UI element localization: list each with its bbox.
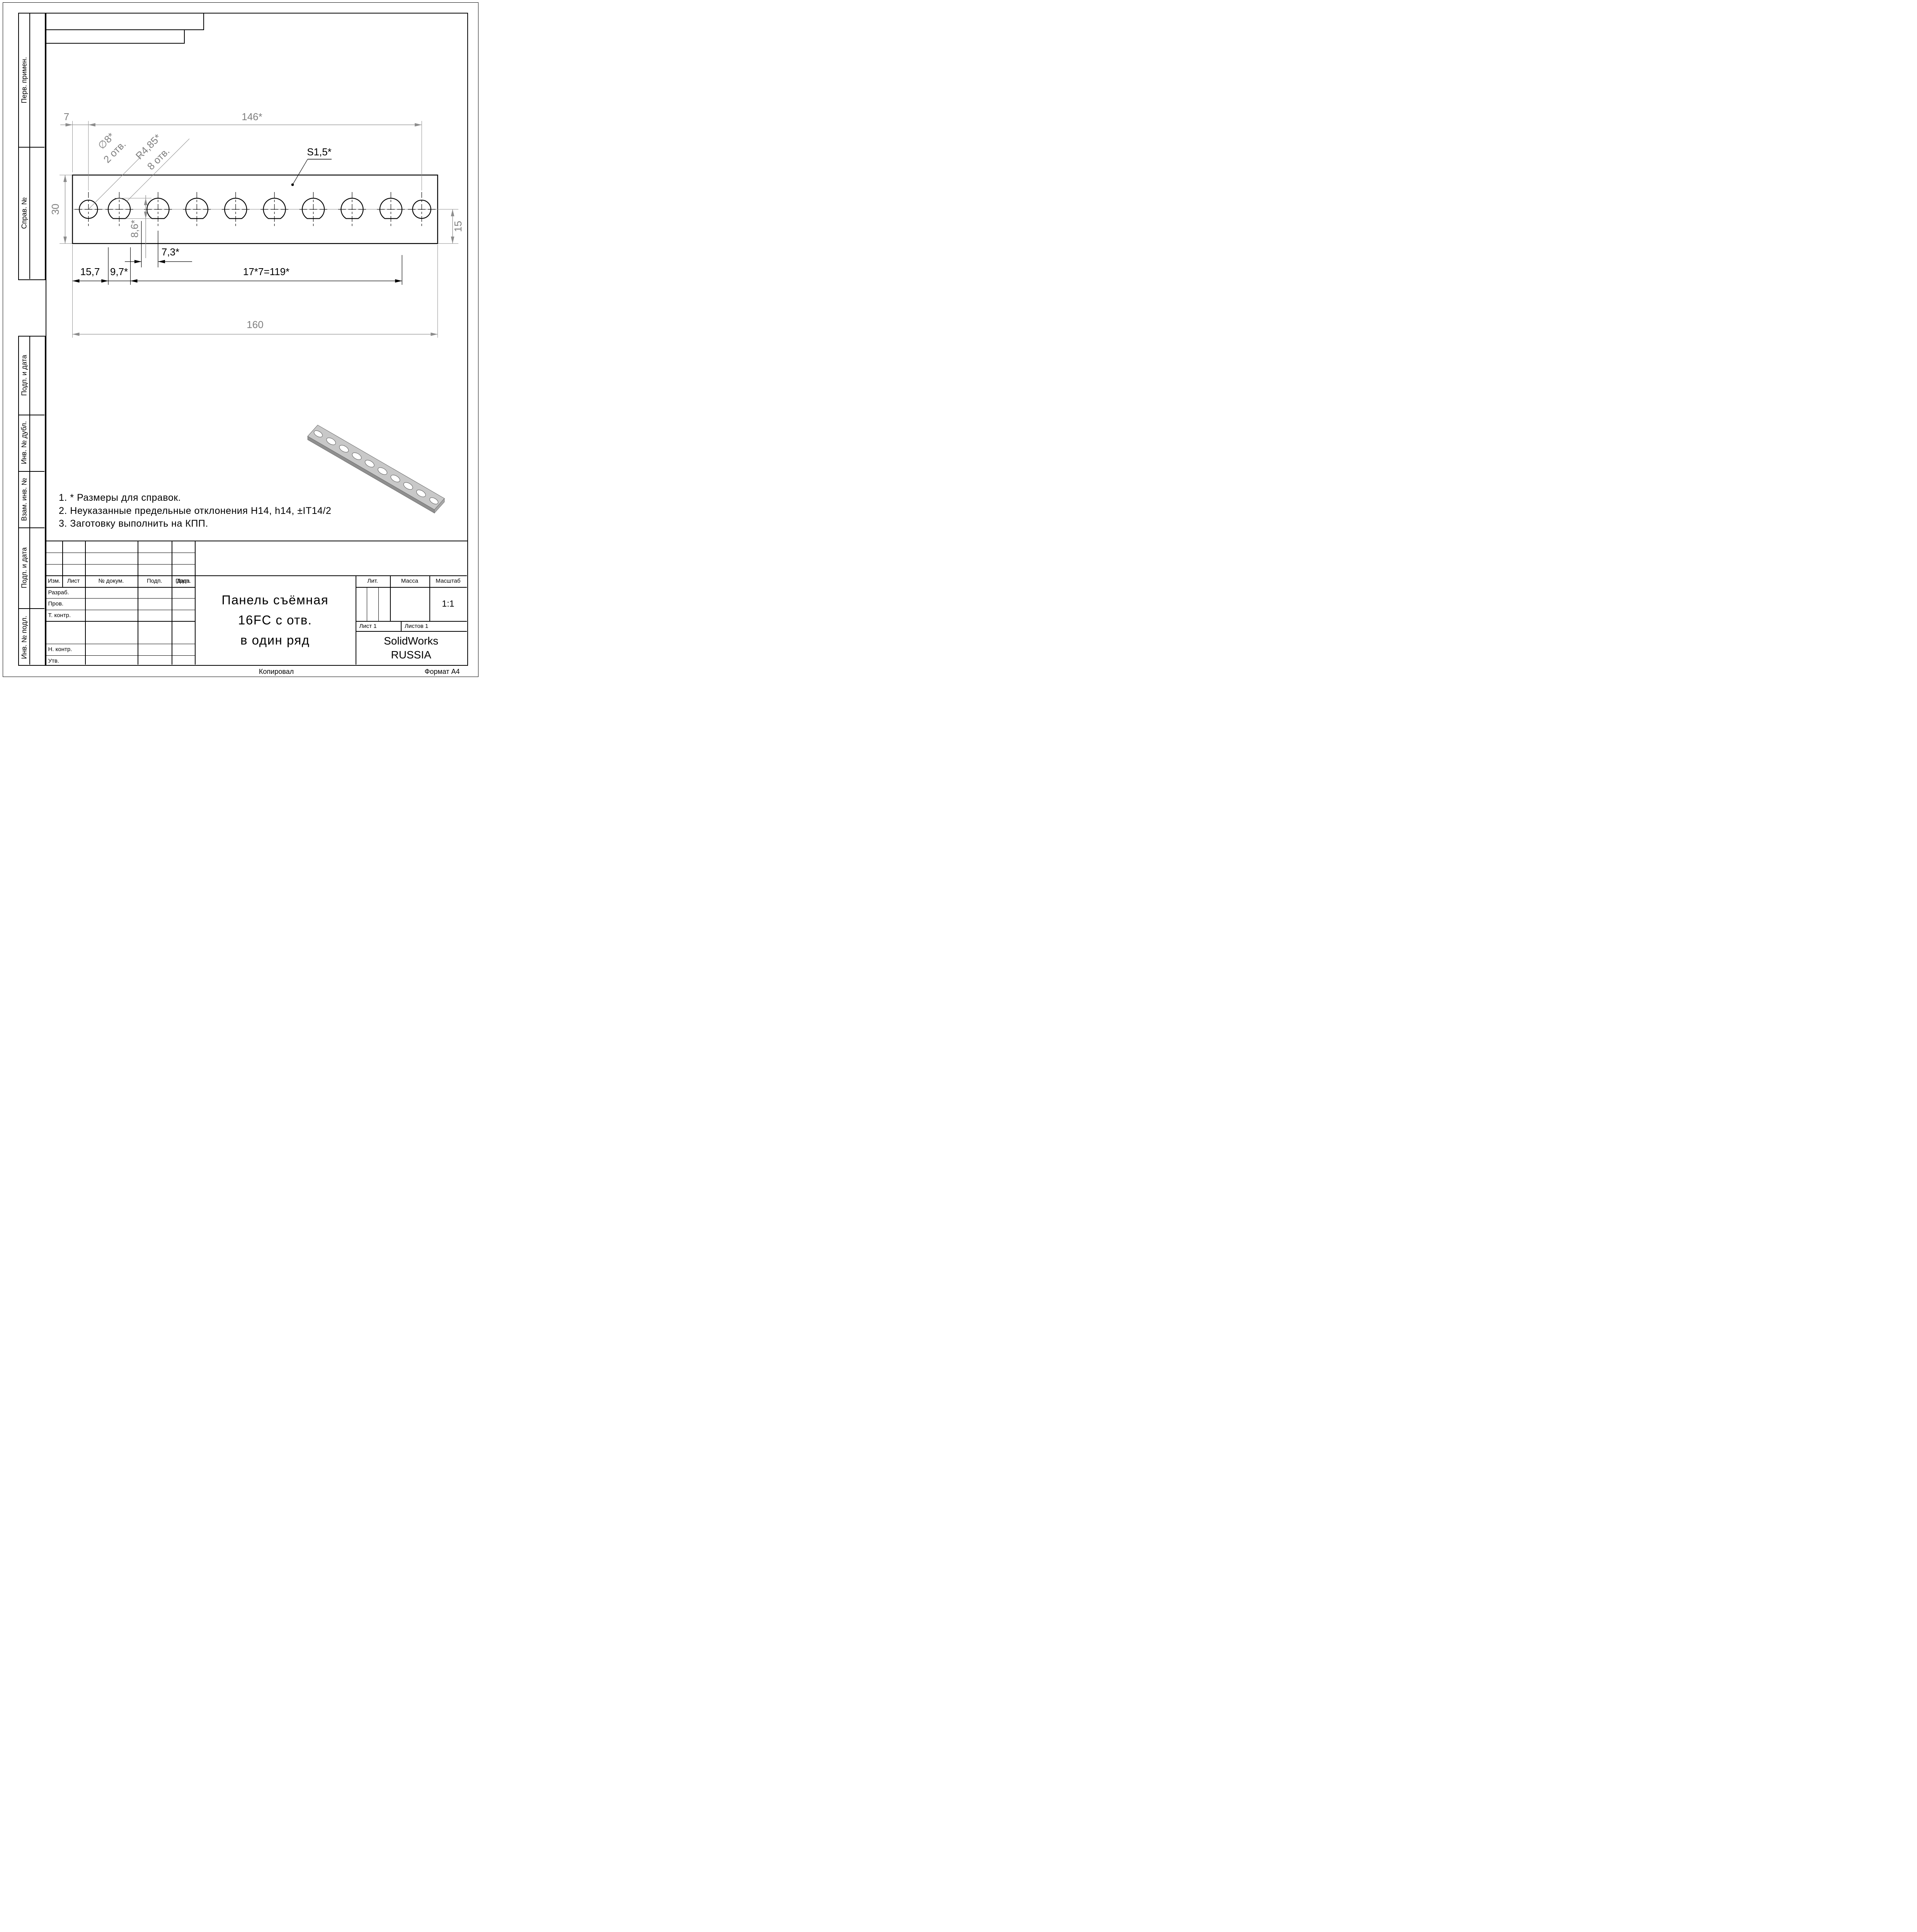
org-name-line: RUSSIA: [391, 648, 431, 662]
note-line: 3. Заготовку выполнить на КПП.: [59, 517, 391, 531]
dimension-height-30: 30: [49, 175, 72, 243]
callout-thickness: S1,5*: [291, 146, 332, 186]
part-title: Панель съёмная 16FC с отв. в один ряд: [195, 575, 356, 665]
tb-row-tkontr: Т. контр.: [46, 610, 85, 621]
dimension-160: 160: [73, 245, 438, 338]
dim-9-7: 9,7*: [110, 266, 128, 277]
dim-8-6: 8,6*: [129, 220, 140, 238]
dimension-chain: 15,7 9,7* 17*7=119*: [73, 245, 402, 338]
holes-middle: [108, 198, 402, 219]
dim-160: 160: [247, 319, 263, 330]
part-title-line: 16FC с отв.: [238, 610, 312, 630]
dim-15: 15: [452, 221, 464, 232]
part-title-line: в один ряд: [240, 630, 310, 650]
dimension-8-6: 8,6*: [114, 195, 152, 258]
callout-diameter: ∅8* 2 отв.: [89, 130, 141, 209]
tb-sheets: Листов 1: [401, 621, 467, 631]
title-block: Изм. Лист № докум. Подп. Подп. Дата Подп…: [46, 541, 468, 666]
dim-146: 146*: [242, 111, 262, 122]
tb-sheet: Лист 1: [356, 621, 401, 631]
dim-7: 7: [64, 111, 69, 122]
dim-15-7: 15,7: [80, 266, 100, 277]
tb-col-izm: Изм.: [46, 575, 62, 587]
org-name-line: SolidWorks: [384, 634, 438, 648]
tb-col-ndokum: № докум.: [85, 575, 138, 587]
technical-notes: 1. * Размеры для справок. 2. Неуказанные…: [59, 492, 391, 531]
drawing-sheet: Перв. примен. Справ. № Подп. и дата Инв.…: [0, 0, 479, 678]
format-label: Формат А4: [413, 667, 471, 677]
dim-119: 17*7=119*: [243, 266, 289, 277]
tb-row-razrab: Разраб.: [46, 587, 85, 599]
callout-radius: R4,85* 8 отв.: [126, 132, 189, 202]
note-line: 1. * Размеры для справок.: [59, 492, 391, 505]
note-line: 2. Неуказанные предельные отклонения H14…: [59, 505, 391, 518]
tb-row-prov: Пров.: [46, 598, 85, 610]
tb-mass-label: Масса: [390, 575, 429, 587]
dim-7-3: 7,3*: [162, 246, 179, 258]
tb-row-nkontr: Н. контр.: [46, 644, 85, 655]
tb-scale-label: Масштаб: [429, 575, 467, 587]
tb-lit-label: Лит.: [356, 575, 390, 587]
tb-col-list: Лист: [62, 575, 85, 587]
copied-label: Копировал: [247, 667, 305, 677]
tb-row-utv: Утв.: [46, 655, 85, 667]
dim-30: 30: [49, 204, 61, 215]
org-name: SolidWorks RUSSIA: [356, 631, 467, 665]
tb-col-data-real: Дата: [172, 575, 195, 587]
tb-col-podp-real: Подп.: [138, 575, 172, 587]
part-title-line: Панель съёмная: [221, 590, 329, 610]
dimension-right-15: 15: [438, 209, 464, 244]
callout-thickness-text: S1,5*: [307, 146, 332, 158]
tb-scale-value: 1:1: [429, 587, 467, 621]
